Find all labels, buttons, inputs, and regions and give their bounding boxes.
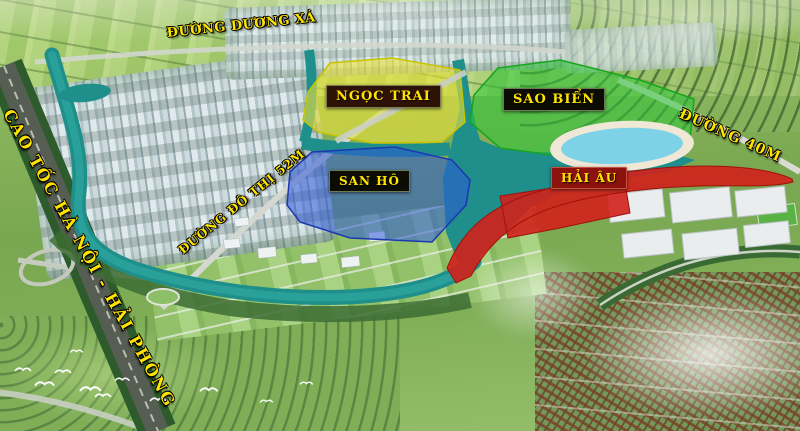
industrial-building (622, 229, 674, 258)
campus-building (301, 253, 318, 264)
bird-icon (35, 382, 54, 385)
bird-icon (260, 400, 273, 402)
industrial-building (670, 187, 733, 223)
campus-building (224, 238, 241, 249)
masterplan-canvas: ĐƯỜNG DƯƠNG XÁ CAO TỐC HÀ NỘI - HẢI PHÒN… (0, 0, 800, 431)
zone-label-ngoc-trai: NGỌC TRAI (326, 85, 441, 108)
campus-building (341, 256, 360, 268)
bird-icon (15, 368, 31, 371)
bird-icon (80, 387, 101, 391)
industrial-building (743, 221, 790, 248)
campus-building (234, 217, 249, 226)
zone-label-sao-bien: SAO BIỂN (503, 88, 605, 111)
zone-san-ho-overlay (287, 147, 470, 242)
industrial-building (682, 228, 739, 260)
bird-icon (95, 394, 111, 397)
bird-icon (55, 370, 71, 373)
bird-icon (200, 388, 218, 391)
campus-building (258, 247, 277, 259)
industrial-building (735, 186, 787, 217)
bird-icon (70, 350, 83, 352)
zone-label-hai-au: HẢI ÂU (551, 167, 627, 189)
zone-label-san-ho: SAN HÔ (329, 170, 410, 192)
road-duong-xa (35, 45, 565, 62)
bird-icon (300, 382, 313, 384)
mist-cloud (468, 248, 600, 340)
stadium-oval (147, 289, 179, 305)
